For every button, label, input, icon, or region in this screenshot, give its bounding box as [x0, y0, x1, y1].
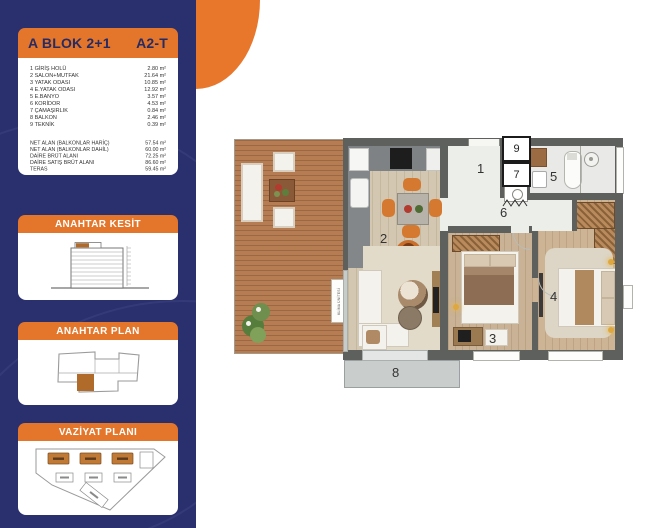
unit-card-body: 1 GİRİŞ HOLÜ2.80 m² 2 SALON+MUTFAK21.64 … — [18, 58, 178, 175]
unit-summary-card: A BLOK 2+1 A2-T 1 GİRİŞ HOLÜ2.80 m² 2 SA… — [18, 28, 178, 175]
table-bowl — [404, 205, 412, 213]
room-number-4: 4 — [550, 289, 557, 304]
terrace-lounger — [241, 163, 263, 222]
window — [548, 351, 603, 361]
terrace-chair — [273, 207, 295, 228]
bed-3 — [461, 251, 519, 324]
bath-sink — [532, 171, 547, 188]
room-balcony — [344, 360, 460, 388]
pillow — [490, 254, 516, 267]
wardrobe — [575, 202, 615, 229]
site-plan-drawing — [22, 443, 174, 513]
flowers — [275, 184, 282, 191]
entry-door — [468, 139, 500, 146]
wall-lamp — [608, 259, 614, 265]
plant — [274, 191, 280, 197]
room-box-9: 9 — [502, 136, 531, 162]
kitchen-appliance — [426, 148, 441, 171]
section-header: VAZİYAT PLANI — [18, 423, 178, 441]
plant-leaf — [250, 327, 266, 343]
armchair — [362, 325, 387, 350]
wall-living-terrace — [343, 146, 348, 270]
section-header: ANAHTAR PLAN — [18, 322, 178, 340]
terrace-chair — [273, 152, 295, 172]
toilet-tank — [567, 153, 577, 160]
window — [616, 147, 624, 194]
sliding-door — [343, 270, 348, 352]
dining-table — [397, 193, 429, 225]
section-card-anahtar-plan: ANAHTAR PLAN — [18, 322, 178, 405]
section-card-anahtar-kesit: ANAHTAR KESİT — [18, 215, 178, 300]
balcony-sliding-door — [362, 350, 428, 361]
pillow — [464, 254, 490, 267]
room-number-3: 3 — [489, 331, 496, 346]
building-section-diagram — [18, 233, 178, 300]
wall-lamp — [608, 327, 614, 333]
shower-glass — [580, 146, 581, 193]
plant-leaf — [252, 303, 270, 321]
wall-lamp — [453, 304, 459, 310]
room-number-8: 8 — [392, 365, 399, 380]
room-row: 8 BALKON2.46 m² — [30, 114, 166, 121]
throw-blanket — [366, 330, 380, 344]
room-entry-hall — [448, 146, 500, 198]
bath-cabinet — [530, 148, 547, 167]
door-gap — [511, 226, 529, 233]
room-row: 1 GİRİŞ HOLÜ2.80 m² — [30, 65, 166, 72]
dining-chair — [402, 225, 420, 238]
room-number-1: 1 — [477, 161, 484, 176]
plant — [282, 189, 289, 196]
section-title: ANAHTAR KESİT — [55, 219, 141, 230]
blanket-fold — [464, 267, 514, 275]
key-section-drawing — [23, 238, 173, 296]
room-row: 2 SALON+MUTFAK21.64 m² — [30, 72, 166, 79]
orange-corner-swoosh — [196, 0, 260, 89]
bed-4 — [558, 268, 617, 327]
section-title: VAZİYAT PLANI — [59, 427, 137, 438]
plant-flower — [256, 307, 261, 312]
bed-runner — [575, 270, 594, 325]
kitchen-sink — [350, 178, 369, 208]
dining-chair — [403, 178, 421, 191]
room-number-2: 2 — [380, 231, 387, 246]
room-row: 5 E.BANYO3.57 m² — [30, 93, 166, 100]
fridge — [349, 148, 369, 171]
wall-corridor-master — [572, 198, 577, 231]
dining-chair — [429, 199, 442, 217]
wall-living-entry — [440, 146, 448, 198]
unit-card-header: A BLOK 2+1 A2-T — [18, 28, 178, 58]
unit-title: A BLOK 2+1 — [28, 35, 111, 51]
room-row: 4 E.YATAK ODASI12.92 m² — [30, 86, 166, 93]
ac-unit-label: KLİMA ÜNİTESİ — [337, 288, 341, 315]
room-number-6: 6 — [500, 205, 507, 220]
room-row: 6 KORİDOR4.53 m² — [30, 100, 166, 107]
section-card-vaziyat-plani: VAZİYAT PLANI — [18, 423, 178, 515]
tv — [458, 330, 471, 342]
wardrobe — [452, 235, 500, 252]
key-plan-drawing — [23, 345, 173, 401]
key-plan-diagram — [18, 340, 178, 405]
totals-list: NET ALAN (BALKONLAR HARİÇ)57.54 m² NET A… — [30, 140, 166, 173]
room-row: 7 ÇAMAŞIRLIK0.84 m² — [30, 107, 166, 114]
plant-flower — [246, 321, 251, 326]
room-box-7: 7 — [502, 162, 531, 187]
terrace-table — [269, 179, 295, 202]
unit-code: A2-T — [136, 35, 168, 51]
section-header: ANAHTAR KESİT — [18, 215, 178, 233]
shower-head — [584, 152, 599, 167]
dresser — [453, 327, 483, 346]
wall-living-bedroom — [440, 231, 448, 350]
side-table — [398, 306, 422, 330]
room-row: 3 YATAK ODASI10.85 m² — [30, 79, 166, 86]
window-sill — [623, 285, 633, 309]
room-row: 9 TEKNİK0.39 m² — [30, 121, 166, 128]
door-gap — [532, 278, 538, 302]
cooktop — [390, 148, 412, 169]
room-number-7: 7 — [513, 169, 519, 181]
site-plan-diagram — [18, 441, 178, 515]
pillow — [601, 298, 615, 325]
total-row: TERAS59.45 m² — [30, 166, 166, 173]
shower-drain — [589, 157, 593, 161]
room-list: 1 GİRİŞ HOLÜ2.80 m² 2 SALON+MUTFAK21.64 … — [30, 65, 166, 129]
section-title: ANAHTAR PLAN — [56, 326, 140, 337]
table-plant — [415, 205, 423, 213]
room-number-5: 5 — [550, 169, 557, 184]
brochure-page: A BLOK 2+1 A2-T 1 GİRİŞ HOLÜ2.80 m² 2 SA… — [0, 0, 660, 528]
dining-chair — [382, 199, 395, 217]
room-number-9: 9 — [513, 143, 519, 155]
floor-plan: KLİMA ÜNİTESİ — [232, 133, 634, 391]
terrace-plant — [240, 303, 272, 345]
pillow — [601, 271, 615, 298]
tv — [433, 287, 439, 313]
window — [473, 351, 520, 361]
